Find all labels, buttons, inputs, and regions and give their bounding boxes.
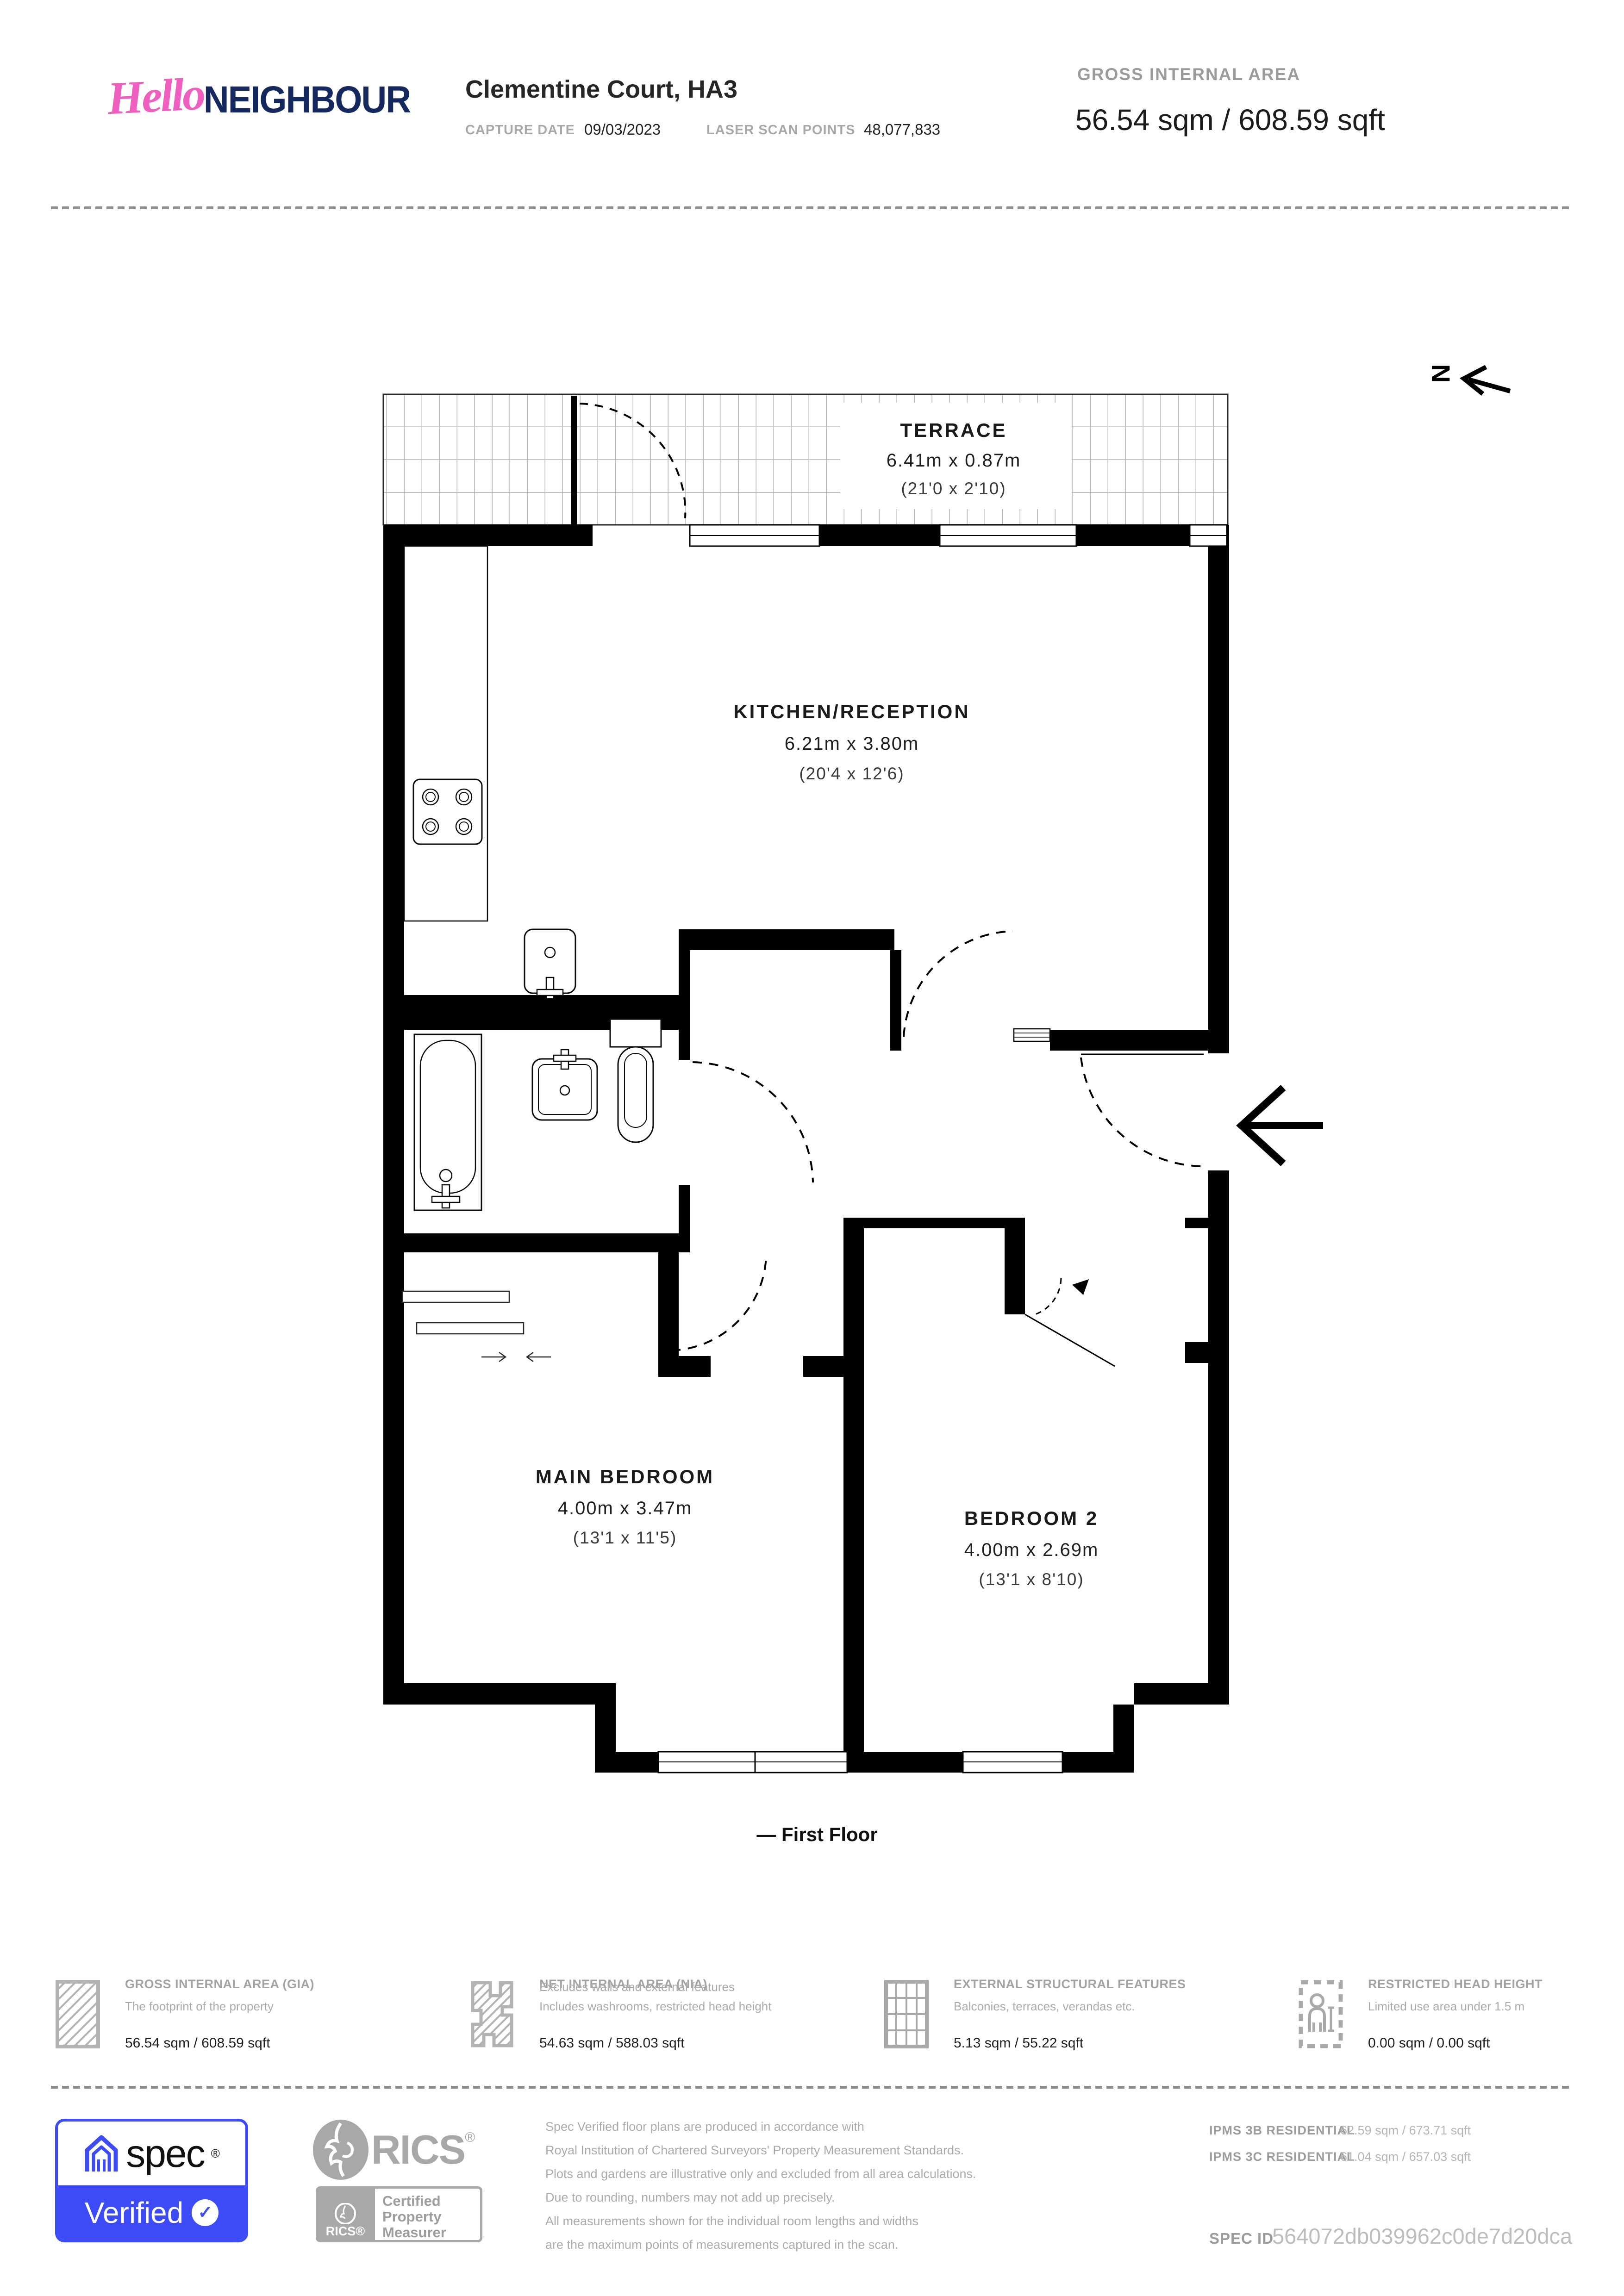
spec-verified-row: Verified ✓: [58, 2185, 245, 2240]
gross-internal-area-value: 56.54 sqm / 608.59 sqft: [1075, 103, 1385, 137]
slide-arrow-left: [527, 1352, 551, 1362]
rics-badge-right: Certified Property Measurer: [375, 2186, 482, 2242]
rics-badge-left: RICS®: [316, 2186, 375, 2242]
kitchen-sink: [525, 929, 575, 999]
kitchen-counter: [404, 546, 487, 921]
legend-esf-value: 5.13 sqm / 55.22 sqft: [954, 2035, 1083, 2051]
restricted-height-icon: [1299, 1980, 1343, 2048]
kitchen-metric: 6.21m x 3.80m: [785, 734, 919, 754]
external-features-grid-icon: [884, 1980, 929, 2048]
capture-date-label: CAPTURE DATE: [465, 123, 575, 138]
toilet: [610, 1019, 661, 1142]
legend-gia-value: 56.54 sqm / 608.59 sqft: [125, 2035, 270, 2051]
rics-lion-icon: [311, 2119, 371, 2181]
kitchen-fixtures: [404, 546, 575, 999]
rics-mini-lion-icon: [335, 2203, 356, 2224]
legend-gia-label: GROSS INTERNAL AREA (GIA): [125, 1977, 314, 1991]
disclaimer-line: Plots and gardens are illustrative only …: [545, 2167, 976, 2181]
hob: [413, 779, 482, 844]
rics-registered-mark: ®: [465, 2130, 475, 2146]
slide-arrow-right: [481, 1352, 506, 1362]
bedroom2-door-arc: [1032, 1278, 1061, 1315]
terrace-imperial: (21'0 x 2'10): [901, 479, 1006, 498]
main-bedroom-imperial: (13'1 x 11'5): [573, 1528, 677, 1547]
footer-divider: [51, 2086, 1572, 2089]
floor-plan: N TERRACE 6.41m x 0.87m (21'0 x 2'10) KI…: [361, 324, 1574, 1851]
spec-id-label: SPEC ID: [1209, 2230, 1274, 2247]
terrace-metric: 6.41m x 0.87m: [887, 450, 1021, 471]
rics-badge-line: Measurer: [382, 2225, 480, 2240]
disclaimer-line: All measurements shown for the individua…: [545, 2214, 976, 2228]
legend-rhh-value: 0.00 sqm / 0.00 sqft: [1368, 2035, 1490, 2051]
rics-logo: RICS ®: [311, 2119, 475, 2181]
window: [940, 525, 1076, 546]
verified-text: Verified: [85, 2196, 183, 2230]
disclaimer-block: Spec Verified floor plans are produced i…: [545, 2120, 976, 2252]
rics-badge-line: Property: [382, 2209, 480, 2225]
laser-scan-value: 48,077,833: [864, 121, 940, 138]
window: [963, 1752, 1062, 1773]
laser-scan-label: LASER SCAN POINTS: [706, 123, 856, 138]
main-bedroom-door-arc: [671, 1255, 766, 1350]
bathtub: [414, 1034, 481, 1210]
rics-badge-brand: RICS®: [326, 2224, 365, 2239]
kitchen-door-arc: [904, 931, 1013, 1037]
entrance-door-arc: [1081, 1058, 1205, 1166]
disclaimer-line: Royal Institution of Chartered Surveyors…: [545, 2143, 976, 2158]
terrace-door-leaf: [571, 396, 577, 525]
gia-hatch-icon: [56, 1980, 100, 2048]
legend-esf-desc: Balconies, terraces, verandas etc.: [954, 1999, 1135, 2014]
terrace-area: [383, 394, 1228, 525]
hall-glazed-panel: [1014, 1029, 1050, 1041]
ipms-3b-value: 62.59 sqm / 673.71 sqft: [1340, 2123, 1471, 2138]
ipms-3c-value: 61.04 sqm / 657.03 sqft: [1340, 2150, 1471, 2164]
logo-hello-text: Hello: [106, 67, 205, 125]
window: [690, 525, 819, 546]
gross-internal-area-label: GROSS INTERNAL AREA: [1077, 65, 1300, 84]
legend-nia-desc1: Includes washrooms, restricted head heig…: [539, 1999, 772, 2014]
property-title: Clementine Court, HA3: [465, 75, 737, 104]
spec-registered-mark: ®: [211, 2147, 220, 2161]
spec-brand-text: spec: [126, 2131, 204, 2176]
spec-house-icon: [83, 2134, 119, 2173]
spec-logo: spec ®: [58, 2122, 245, 2185]
bedroom2-name: BEDROOM 2: [964, 1507, 1099, 1529]
terrace-name: TERRACE: [900, 419, 1007, 441]
bathroom-fixtures: [414, 1019, 661, 1210]
door-swing-arcs: [671, 931, 1205, 1350]
ipms-3b-label: IPMS 3B RESIDENTIAL: [1209, 2123, 1355, 2138]
spec-id-value: 564072db039962c0de7d20dca: [1272, 2223, 1572, 2249]
window: [1190, 525, 1227, 546]
main-bedroom-metric: 4.00m x 3.47m: [558, 1498, 693, 1518]
legend-nia-value: 54.63 sqm / 588.03 sqft: [539, 2035, 685, 2051]
bedroom2-imperial: (13'1 x 8'10): [979, 1570, 1084, 1589]
kitchen-name: KITCHEN/RECEPTION: [733, 701, 970, 722]
legend-esf-label: EXTERNAL STRUCTURAL FEATURES: [954, 1977, 1186, 1991]
rics-word: RICS: [371, 2126, 465, 2173]
basin: [532, 1050, 597, 1120]
bedroom2-door-leaf: [1025, 1314, 1115, 1366]
ipms-3c-label: IPMS 3C RESIDENTIAL: [1209, 2150, 1355, 2164]
north-arrow-icon: N: [1426, 364, 1510, 394]
bedroom2-door-marker: [1072, 1279, 1089, 1295]
legend-gia-desc: The footprint of the property: [125, 1999, 274, 2014]
entrance-arrow-icon: [1242, 1088, 1323, 1164]
nia-hatch-icon: [470, 1980, 514, 2048]
disclaimer-line: Due to rounding, numbers may not add up …: [545, 2190, 976, 2205]
kitchen-imperial: (20'4 x 12'6): [799, 764, 904, 783]
wardrobe: [402, 1291, 551, 1362]
disclaimer-line: are the maximum points of measurements c…: [545, 2238, 976, 2252]
check-icon: ✓: [192, 2199, 219, 2226]
rics-certified-badge: RICS® Certified Property Measurer: [316, 2186, 482, 2242]
header-divider: [51, 206, 1572, 209]
brand-logo: HelloNEIGHBOUR: [107, 69, 410, 123]
north-label: N: [1426, 364, 1455, 383]
window: [658, 1752, 847, 1773]
capture-date-value: 09/03/2023: [584, 121, 661, 138]
floor-label: — First Floor: [694, 1823, 940, 1846]
spec-verified-badge: spec ® Verified ✓: [55, 2119, 248, 2242]
main-bedroom-name: MAIN BEDROOM: [536, 1466, 714, 1487]
bathroom-door-arc: [693, 1062, 813, 1182]
bedroom2-metric: 4.00m x 2.69m: [964, 1540, 1099, 1560]
disclaimer-line: Spec Verified floor plans are produced i…: [545, 2120, 976, 2134]
legend-rhh-desc: Limited use area under 1.5 m: [1368, 1999, 1524, 2014]
legend-rhh-label: RESTRICTED HEAD HEIGHT: [1368, 1977, 1543, 1991]
logo-neighbour-text: NEIGHBOUR: [204, 78, 410, 122]
legend-nia-desc2: Excludes walls and external features: [539, 1980, 735, 1994]
rics-badge-line: Certified: [382, 2193, 480, 2209]
